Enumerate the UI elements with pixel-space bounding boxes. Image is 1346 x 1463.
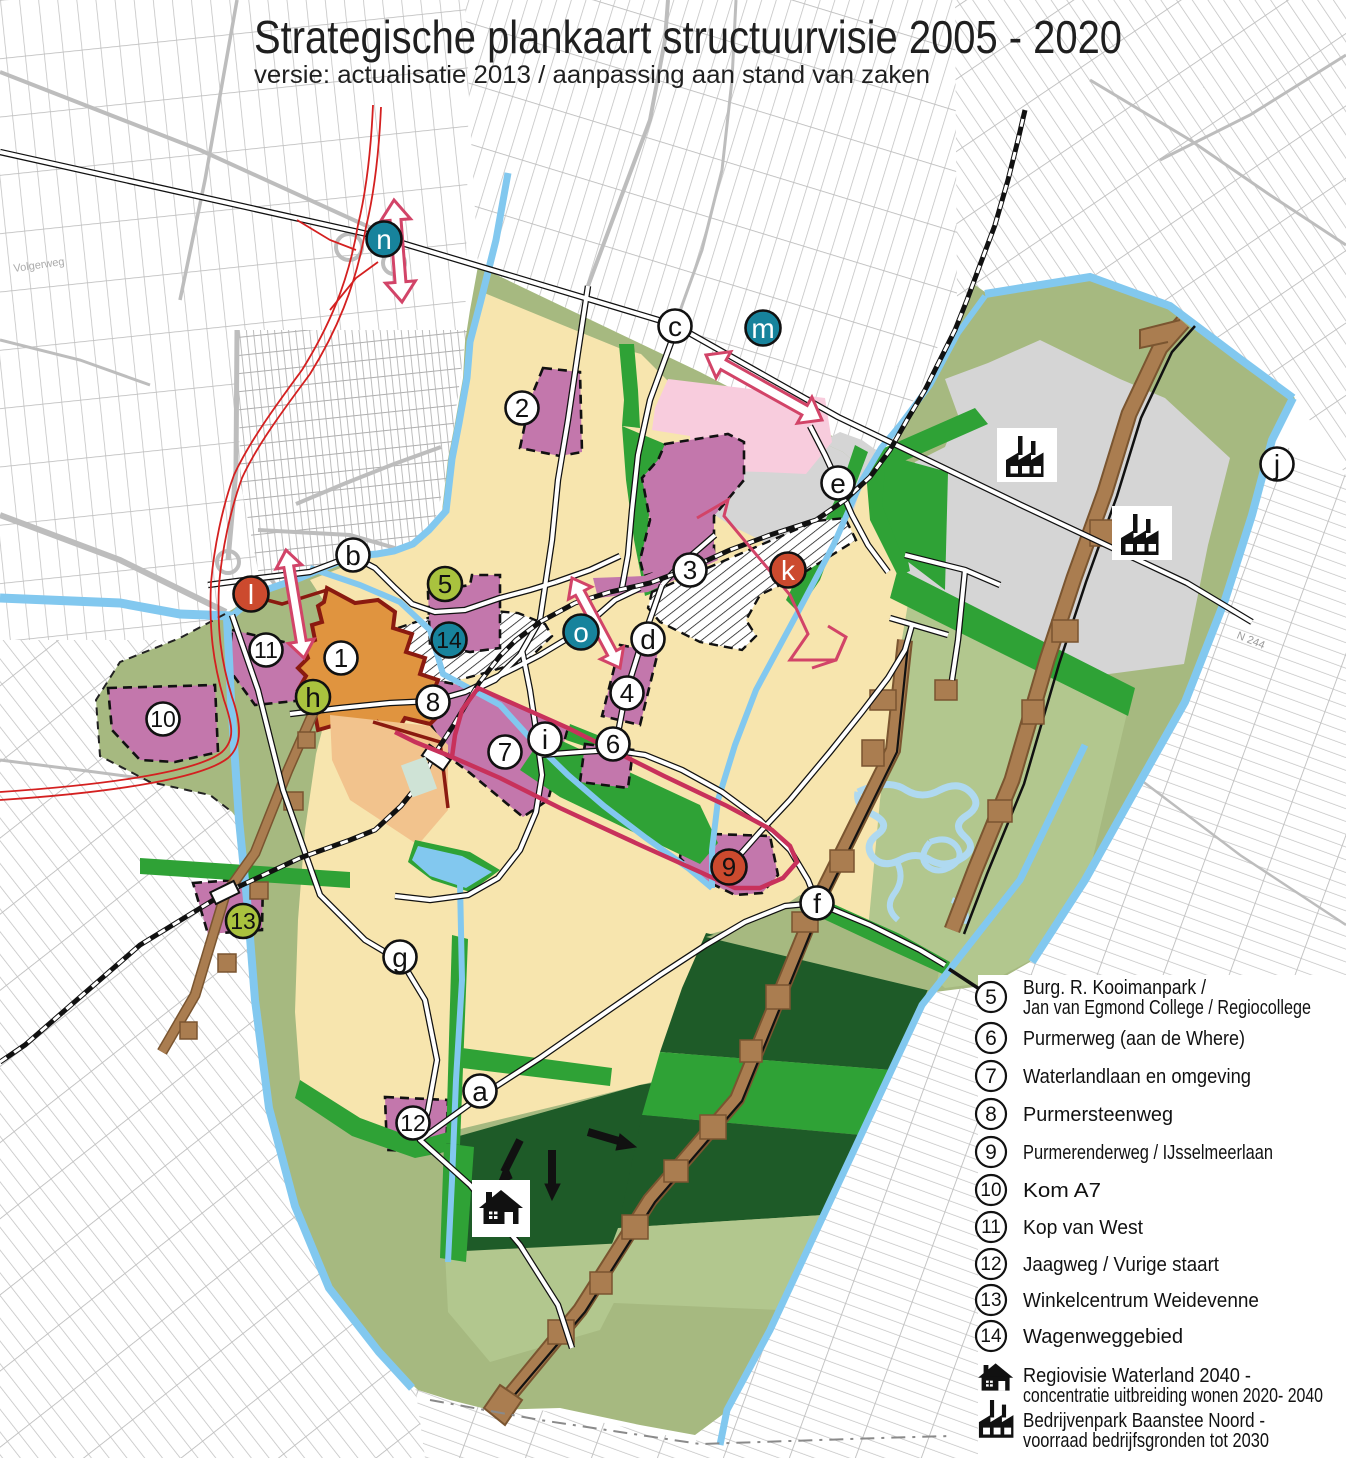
svg-text:Strategische plankaart structu: Strategische plankaart structuurvisie 20… xyxy=(254,11,1122,63)
svg-text:2: 2 xyxy=(515,393,529,423)
svg-text:i: i xyxy=(542,724,548,755)
svg-text:h: h xyxy=(305,682,321,713)
svg-text:7: 7 xyxy=(498,737,512,767)
svg-text:1: 1 xyxy=(334,643,348,673)
svg-text:13: 13 xyxy=(980,1290,1001,1311)
svg-text:6: 6 xyxy=(985,1027,997,1050)
svg-text:versie: actualisatie 2013 / aa: versie: actualisatie 2013 / aanpassing a… xyxy=(254,61,930,89)
svg-text:k: k xyxy=(781,555,796,586)
svg-text:8: 8 xyxy=(985,1103,997,1126)
svg-text:13: 13 xyxy=(230,908,256,934)
svg-text:concentratie uitbreiding wonen: concentratie uitbreiding wonen 2020- 204… xyxy=(1023,1384,1323,1407)
svg-text:11: 11 xyxy=(981,1217,1001,1238)
svg-text:j: j xyxy=(1273,449,1280,480)
svg-text:o: o xyxy=(573,617,589,648)
svg-text:Purmersteenweg: Purmersteenweg xyxy=(1023,1103,1173,1126)
svg-text:c: c xyxy=(668,311,682,342)
svg-text:f: f xyxy=(813,888,821,919)
svg-text:8: 8 xyxy=(426,687,440,717)
svg-text:9: 9 xyxy=(722,852,736,882)
svg-text:3: 3 xyxy=(683,555,697,585)
svg-text:Waterlandlaan en omgeving: Waterlandlaan en omgeving xyxy=(1023,1065,1251,1088)
svg-text:Wagenweggebied: Wagenweggebied xyxy=(1023,1325,1183,1348)
svg-text:g: g xyxy=(392,942,408,973)
svg-text:n: n xyxy=(376,224,392,255)
svg-text:m: m xyxy=(751,313,774,344)
svg-text:4: 4 xyxy=(620,678,634,708)
svg-text:Purmerweg (aan de Where): Purmerweg (aan de Where) xyxy=(1023,1027,1245,1050)
svg-text:14: 14 xyxy=(980,1326,1002,1347)
svg-text:Jaagweg / Vurige staart: Jaagweg / Vurige staart xyxy=(1023,1253,1219,1276)
svg-text:12: 12 xyxy=(400,1110,426,1136)
svg-text:b: b xyxy=(345,540,361,571)
svg-text:5: 5 xyxy=(985,986,997,1009)
svg-text:Kom A7: Kom A7 xyxy=(1023,1179,1101,1202)
svg-text:Jan van Egmond College / Regio: Jan van Egmond College / Regiocollege xyxy=(1023,996,1311,1019)
svg-text:10: 10 xyxy=(980,1180,1001,1201)
svg-text:6: 6 xyxy=(606,729,620,759)
svg-text:a: a xyxy=(472,1076,488,1107)
svg-text:d: d xyxy=(640,624,656,655)
svg-text:Purmerenderweg / IJsselmeerlaa: Purmerenderweg / IJsselmeerlaan xyxy=(1023,1141,1273,1164)
svg-text:11: 11 xyxy=(254,637,278,663)
svg-text:14: 14 xyxy=(436,627,462,653)
svg-text:e: e xyxy=(830,468,846,499)
svg-text:Kop van West: Kop van West xyxy=(1023,1216,1143,1239)
svg-text:l: l xyxy=(248,579,254,610)
svg-text:10: 10 xyxy=(150,706,176,732)
svg-text:Winkelcentrum Weidevenne: Winkelcentrum Weidevenne xyxy=(1023,1289,1259,1312)
svg-text:7: 7 xyxy=(985,1065,997,1088)
svg-text:12: 12 xyxy=(980,1254,1001,1275)
svg-text:9: 9 xyxy=(985,1141,997,1164)
svg-text:5: 5 xyxy=(438,569,452,599)
svg-text:voorraad bedrijfsgronden tot 2: voorraad bedrijfsgronden tot 2030 xyxy=(1023,1429,1269,1452)
